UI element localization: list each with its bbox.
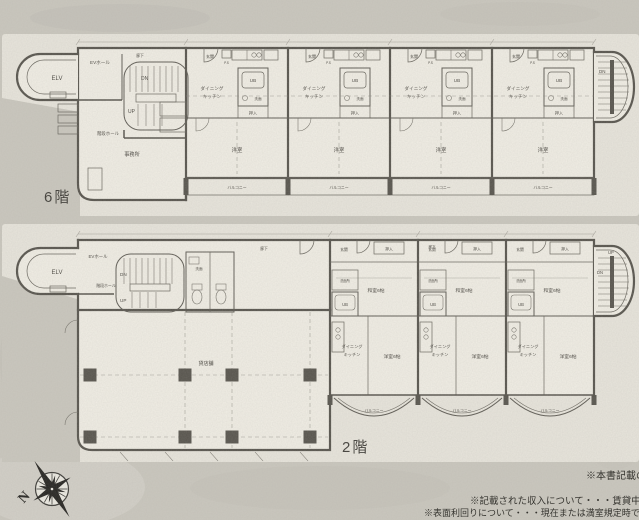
washroom-full-label: 洗面所 [428, 278, 438, 283]
washroom-label: 洗面 [356, 96, 364, 101]
entrance-label: 玄関 [340, 247, 348, 252]
ev-hall-label-2f: EVホール [88, 254, 108, 259]
balcony-label: バルコニー [541, 408, 560, 413]
entrance-label: 玄関 [516, 247, 524, 252]
note-line-1: ※本書記載の [586, 467, 639, 482]
western-room6-label: 洋室6帖 [383, 353, 400, 360]
note-line-2: ※記載された収入について・・・賃貸中 [470, 493, 639, 507]
entrance-label: 玄関 [206, 53, 214, 59]
stair-hall-label-6f: 階段ホール [97, 130, 120, 137]
dk-label: ダイニング [342, 343, 363, 350]
elevator-2f: ELV [17, 248, 78, 294]
dk-label: ダイニング [507, 85, 530, 92]
elv-label: ELV [52, 76, 63, 82]
elv-label-2f: ELV [52, 270, 63, 276]
balcony-label: バルコニー [365, 408, 384, 413]
balcony-label: バルコニー [431, 185, 450, 190]
corridor-label-6f: 廊下 [136, 53, 144, 58]
japanese-room-label: 和室6帖 [455, 287, 472, 294]
floor-2-label: 2階 [342, 439, 369, 456]
balcony-label: バルコニー [227, 185, 246, 190]
ev-hall-label-6f: EVホール [90, 60, 110, 65]
washroom-full-label: 洗面所 [516, 278, 526, 283]
closet-label: 押入 [561, 247, 569, 252]
dk-label: キッチン [305, 94, 324, 99]
dn-label-tower-2f: DN [597, 270, 603, 275]
up-label-2f: UP [120, 298, 126, 303]
elevator-6f: ELV [17, 54, 78, 100]
floor-6-plan: ELV EVホール DN UP 階段ホール 廊下 [17, 39, 634, 206]
floorplan-drawing: ELV EVホール DN UP 階段ホール 廊下 [0, 0, 639, 520]
note-line-3: ※表面利回りについて・・・現在または満室規定時で [424, 506, 639, 519]
closet-label: 押入 [555, 110, 563, 116]
ps-label: P.S [530, 61, 535, 65]
japanese-room-label: 和室6帖 [543, 287, 560, 294]
balcony-label: バルコニー [453, 408, 472, 413]
ps-label: P.S [326, 61, 331, 65]
western-room6-label: 洋室6帖 [559, 353, 576, 360]
japanese-room-label: 和室6帖 [367, 287, 384, 294]
washroom-label: 洗面 [458, 96, 466, 101]
dk-label: ダイニング [518, 343, 539, 350]
floor-6-label: 6階 [44, 189, 71, 206]
stair-tower-6f: DN [594, 52, 634, 122]
dk-label: キッチン [432, 352, 449, 357]
ps-label: P.S [428, 61, 433, 65]
balcony-label: バルコニー [533, 185, 552, 190]
up-label-tower-2f: UP [608, 250, 614, 255]
ub-label: UB [556, 78, 562, 83]
ub-label: UB [430, 302, 436, 307]
shop-label: 貸店舗 [198, 360, 213, 367]
dn-label-2f: DN [120, 272, 127, 277]
dk-label: キッチン [203, 94, 222, 99]
dk-label: キッチン [344, 352, 361, 357]
closet-label: 押入 [351, 110, 359, 116]
dk-label: ダイニング [201, 85, 224, 92]
western-room6-label: 洋室6帖 [471, 353, 488, 360]
stair-tower-2f: UP DN [594, 246, 634, 316]
dn-label-tower-6f: DN [599, 69, 606, 74]
closet-label: 押入 [473, 247, 481, 252]
ps-label: P.S [224, 61, 229, 65]
dk-label: ダイニング [303, 85, 326, 92]
entrance-label: 玄関 [410, 53, 418, 59]
washroom-label: 洗面 [560, 96, 568, 101]
dn-label-6f: DN [141, 76, 149, 82]
closet-label: 押入 [249, 110, 257, 116]
dk-label: ダイニング [430, 343, 451, 350]
up-label-6f: UP [128, 109, 136, 115]
ub-label: UB [454, 78, 460, 83]
entrance-label: 玄関 [428, 247, 436, 252]
scanned-floorplan-page: ELV EVホール DN UP 階段ホール 廊下 [0, 0, 639, 520]
entrance-label: 玄関 [512, 53, 520, 59]
ub-label: UB [342, 302, 348, 307]
ub-label: UB [352, 78, 358, 83]
dk-label: キッチン [509, 94, 528, 99]
ub-label: UB [250, 78, 256, 83]
entrance-label: 玄関 [308, 53, 316, 59]
corridor-label-2f-a: 廊下 [260, 246, 268, 251]
office-label: 事務所 [124, 150, 140, 158]
closet-label: 押入 [453, 110, 461, 116]
ub-label: UB [518, 302, 524, 307]
closet-label: 押入 [385, 247, 393, 252]
dk-label: キッチン [520, 352, 537, 357]
stair-hall-label-2f: 階段ホール [96, 283, 116, 288]
dk-label: ダイニング [405, 85, 428, 92]
washroom-label-2f: 洗面 [195, 266, 203, 271]
dk-label: キッチン [407, 94, 426, 99]
washroom-label: 洗面 [254, 96, 262, 101]
washroom-full-label: 洗面所 [340, 278, 350, 283]
balcony-label: バルコニー [329, 185, 348, 190]
